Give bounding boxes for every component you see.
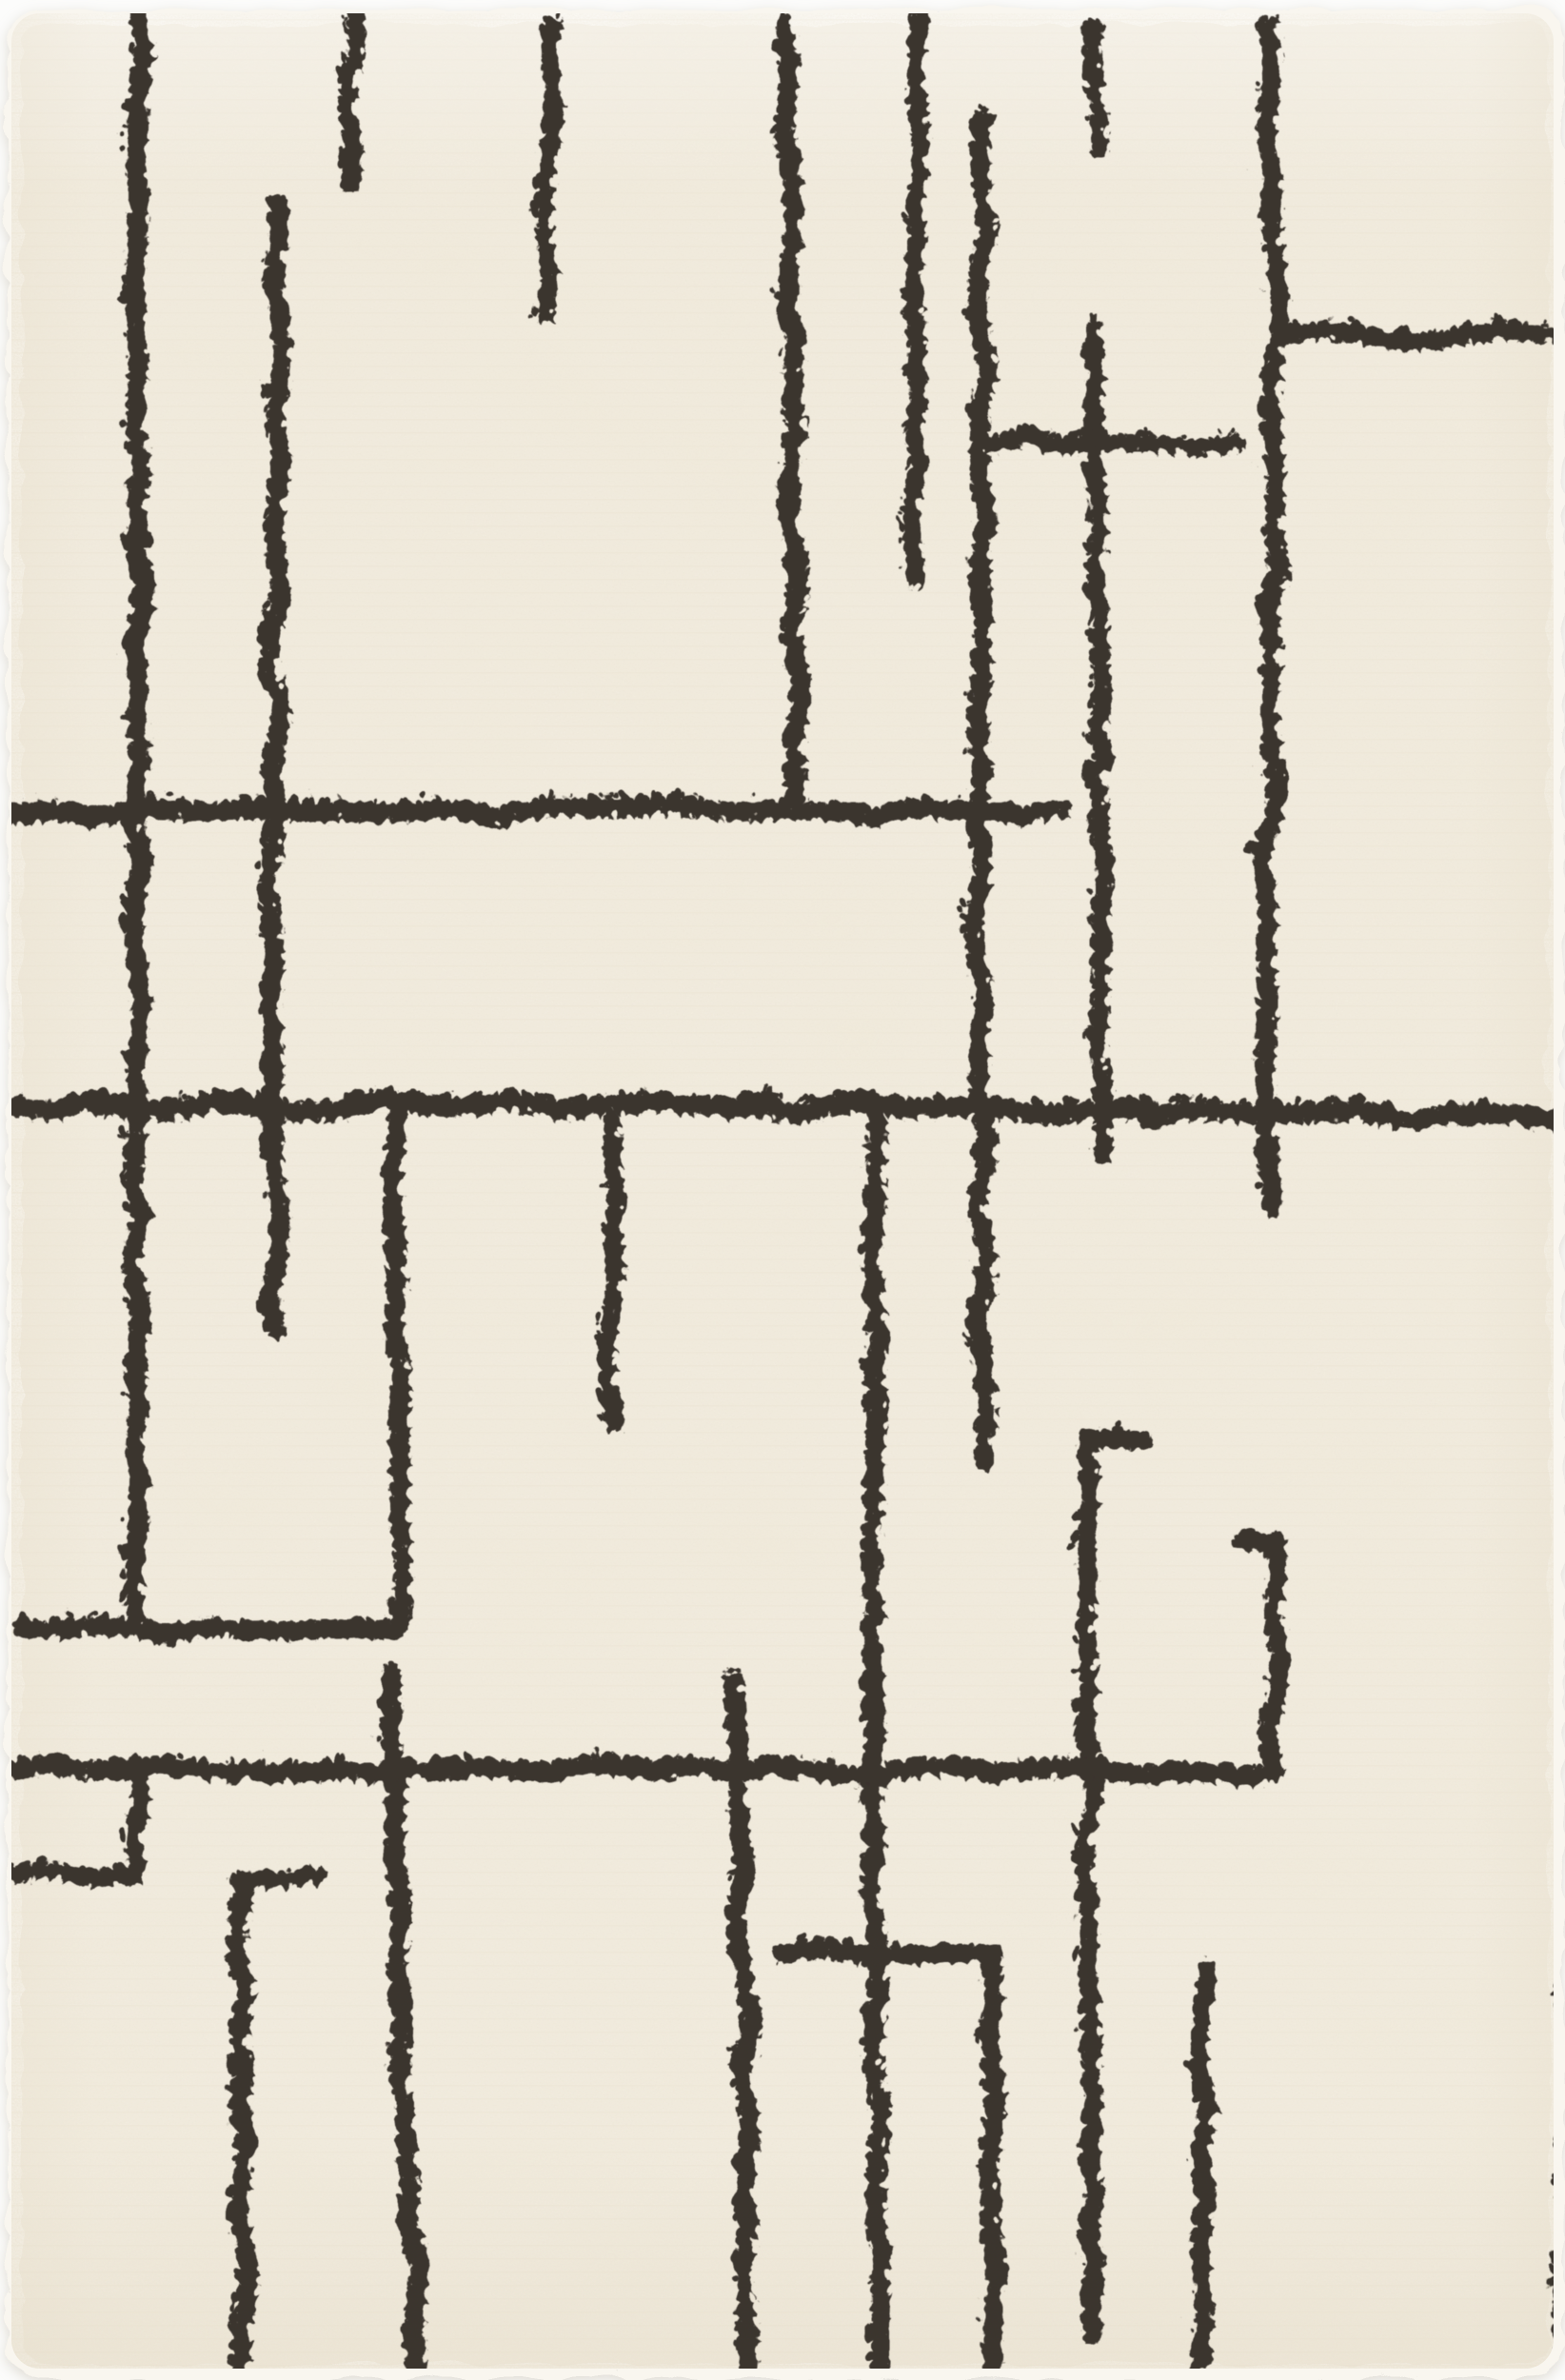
rug-line-v-250-bottom: [232, 1875, 243, 2359]
rug-line-h-2047: [779, 1942, 987, 1951]
rug-line-v-1145-stub-top: [1087, 21, 1094, 143]
rug-line-h-1968-elbow: [234, 1872, 314, 1875]
rug-line-v-960: [905, 15, 916, 574]
rug-line-v-140-step-stub: [129, 1768, 137, 1867]
rug-line-v-left-long: [126, 15, 140, 1622]
rug-line-h-1705: [16, 1619, 393, 1630]
rug-line-v-top-short: [343, 10, 352, 178]
rug-product-photo: [0, 0, 1565, 2380]
rug-line-v-top-center: [540, 21, 552, 311]
rug-line-v-915-long: [863, 1106, 877, 2359]
rug-photo-canvas: [0, 0, 1565, 2380]
rug-line-v-1262-bottom: [1194, 1964, 1205, 2359]
rug-line-h-1962-left: [8, 1866, 131, 1874]
rug-line-h-1505-arm: [1080, 1433, 1138, 1436]
rug-line-h-1855-long: [8, 1758, 1270, 1772]
rug-line-v-1136-bottom: [1078, 1435, 1091, 2330]
rug-line-v-637-stub: [602, 1118, 611, 1418]
rug-line-v-1035-bottom: [981, 1953, 993, 2370]
rug-line-v-412: [387, 1104, 398, 1621]
rug-line-h-847-long: [10, 801, 1055, 814]
